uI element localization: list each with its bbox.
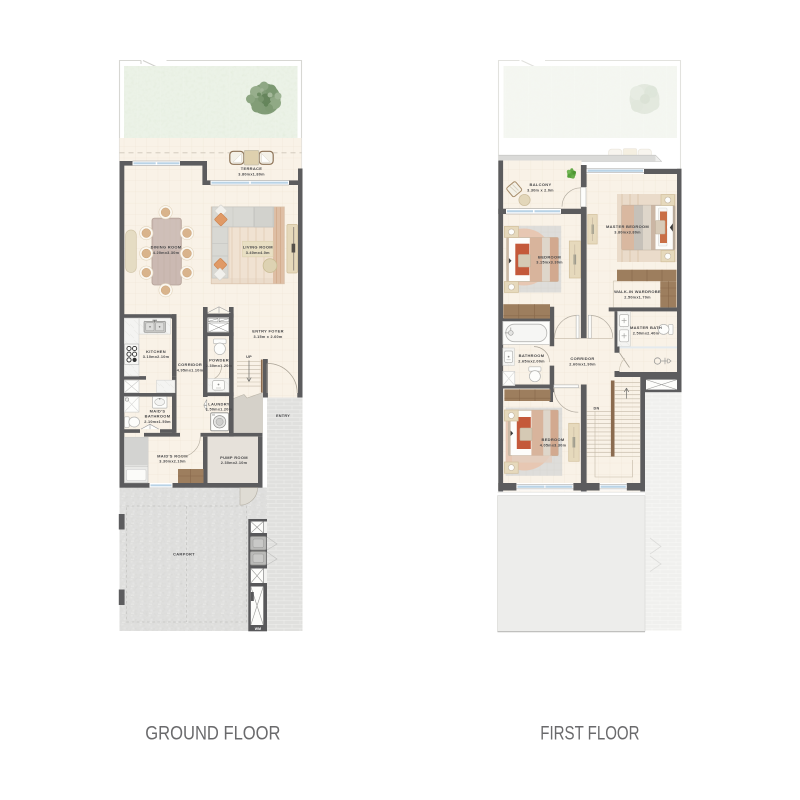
- svg-text:3.10mx2.10m: 3.10mx2.10m: [143, 355, 170, 359]
- svg-text:3.80mx3.80m: 3.80mx3.80m: [614, 231, 641, 235]
- svg-text:TERRACE: TERRACE: [241, 166, 262, 171]
- svg-text:MAID'S ROOM: MAID'S ROOM: [157, 453, 188, 458]
- svg-text:DN: DN: [594, 407, 600, 411]
- svg-text:BATHROOM: BATHROOM: [519, 353, 545, 358]
- svg-text:3.15mx3.30m: 3.15mx3.30m: [536, 261, 563, 265]
- svg-text:CARPORT: CARPORT: [173, 552, 195, 557]
- svg-text:WM: WM: [255, 627, 261, 631]
- svg-text:3.30m x 2.0m: 3.30m x 2.0m: [527, 189, 554, 193]
- svg-text:CORRIDOR: CORRIDOR: [178, 362, 202, 367]
- svg-text:3.40mx4.0m: 3.40mx4.0m: [246, 251, 270, 255]
- svg-text:ENTRY: ENTRY: [276, 414, 290, 418]
- svg-text:CORRIDOR: CORRIDOR: [570, 356, 594, 361]
- svg-text:LAUNDRY: LAUNDRY: [208, 401, 230, 406]
- svg-text:BEDROOM: BEDROOM: [542, 437, 565, 442]
- svg-text:POWDER: POWDER: [209, 358, 229, 363]
- svg-text:3.15m x 2.60m: 3.15m x 2.60m: [253, 335, 282, 339]
- svg-text:WALK-IN WARDROBE: WALK-IN WARDROBE: [614, 289, 661, 294]
- svg-text:MAID'S: MAID'S: [150, 408, 166, 413]
- svg-text:MASTER BATH: MASTER BATH: [630, 325, 662, 330]
- svg-text:2.65mx2.00m: 2.65mx2.00m: [518, 360, 545, 364]
- svg-text:2.10mx1.50m: 2.10mx1.50m: [144, 420, 171, 424]
- svg-text:UP: UP: [246, 355, 252, 359]
- svg-text:BALCONY: BALCONY: [530, 182, 552, 187]
- svg-text:4.05mx3.30m: 4.05mx3.30m: [540, 444, 567, 448]
- svg-text:BATHROOM: BATHROOM: [145, 414, 171, 419]
- svg-text:KITCHEN: KITCHEN: [146, 349, 166, 354]
- svg-text:DINING ROOM: DINING ROOM: [151, 245, 182, 250]
- svg-text:1.50mx1.20m: 1.50mx1.20m: [206, 408, 233, 412]
- svg-text:LIVING ROOM: LIVING ROOM: [243, 244, 274, 249]
- svg-text:ENTRY FOYER: ENTRY FOYER: [252, 328, 284, 333]
- svg-text:2.50mx1.70m: 2.50mx1.70m: [624, 296, 651, 300]
- svg-text:FIRST FLOOR: FIRST FLOOR: [540, 723, 639, 745]
- svg-text:2.60mx1.90m: 2.60mx1.90m: [569, 363, 596, 367]
- svg-text:3.30mx2.10m: 3.30mx2.10m: [159, 460, 186, 464]
- svg-text:4.20mx3.30m: 4.20mx3.30m: [153, 251, 180, 255]
- svg-text:GROUND FLOOR: GROUND FLOOR: [145, 723, 280, 745]
- svg-text:2.30mx2.10m: 2.30mx2.10m: [221, 461, 248, 465]
- svg-text:MASTER BEDROOM: MASTER BEDROOM: [606, 224, 649, 229]
- svg-text:2.50mx2.40m: 2.50mx2.40m: [633, 332, 660, 336]
- svg-text:3.80mx1.80m: 3.80mx1.80m: [238, 172, 265, 176]
- svg-text:2.30mx1.20m: 2.30mx1.20m: [206, 364, 233, 368]
- svg-text:4.95mx1.10m: 4.95mx1.10m: [177, 368, 204, 372]
- svg-text:BEDROOM: BEDROOM: [538, 254, 561, 259]
- svg-text:PUMP ROOM: PUMP ROOM: [220, 455, 248, 460]
